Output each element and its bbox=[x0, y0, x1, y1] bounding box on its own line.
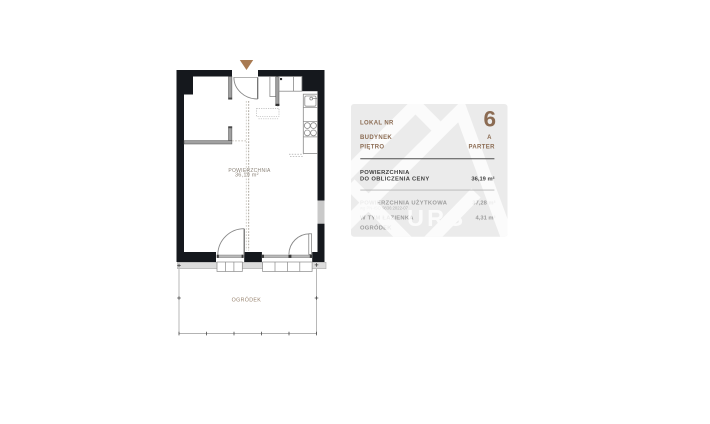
svg-text:PARTER: PARTER bbox=[468, 145, 495, 151]
svg-text:A: A bbox=[487, 135, 492, 141]
svg-text:URS: URS bbox=[407, 205, 466, 231]
svg-text:6: 6 bbox=[483, 107, 496, 132]
svg-text:OGRÓDEK: OGRÓDEK bbox=[232, 296, 262, 303]
svg-text:DO OBLICZENIA CENY: DO OBLICZENIA CENY bbox=[360, 176, 430, 182]
svg-text:36,19 m²: 36,19 m² bbox=[235, 172, 259, 178]
svg-text:BUDYNEK: BUDYNEK bbox=[360, 135, 392, 141]
svg-text:PIĘTRO: PIĘTRO bbox=[360, 145, 384, 151]
svg-text:LOKAL NR: LOKAL NR bbox=[360, 120, 394, 126]
svg-text:36,19 m²: 36,19 m² bbox=[471, 175, 494, 182]
svg-text:POWIERZCHNIA: POWIERZCHNIA bbox=[360, 170, 410, 176]
